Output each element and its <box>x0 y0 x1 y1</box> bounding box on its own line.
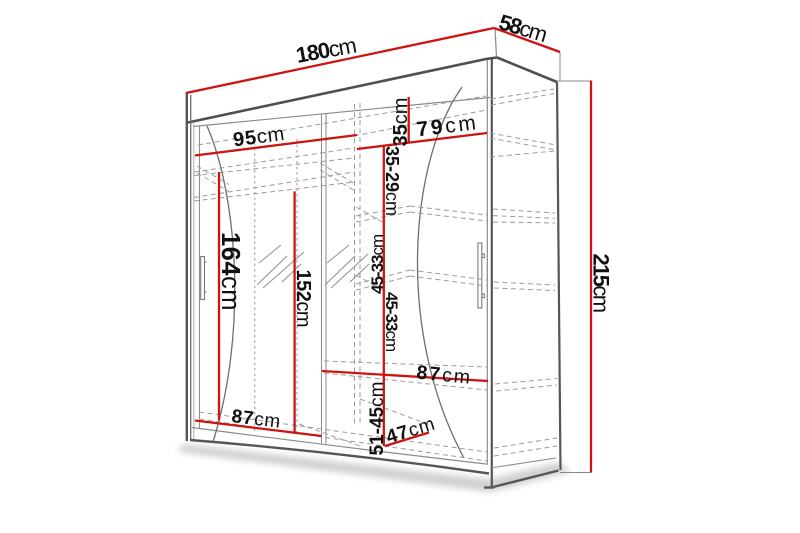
svg-text:87cm: 87cm <box>416 362 474 389</box>
svg-text:79cm: 79cm <box>415 111 480 141</box>
svg-text:152cm: 152cm <box>292 270 314 328</box>
svg-text:95cm: 95cm <box>232 123 287 152</box>
svg-text:51-45cm: 51-45cm <box>367 382 388 456</box>
svg-text:180cm: 180cm <box>294 33 358 68</box>
svg-text:47cm: 47cm <box>384 413 438 448</box>
svg-text:164cm: 164cm <box>216 232 244 311</box>
svg-text:35cm: 35cm <box>390 98 412 147</box>
svg-text:45-33cm: 45-33cm <box>382 292 401 352</box>
svg-text:87cm: 87cm <box>230 406 282 433</box>
svg-text:58cm: 58cm <box>496 9 549 47</box>
svg-text:45-33cm: 45-33cm <box>368 234 387 294</box>
svg-text:215cm: 215cm <box>589 254 614 312</box>
svg-text:35-29cm: 35-29cm <box>382 146 402 216</box>
